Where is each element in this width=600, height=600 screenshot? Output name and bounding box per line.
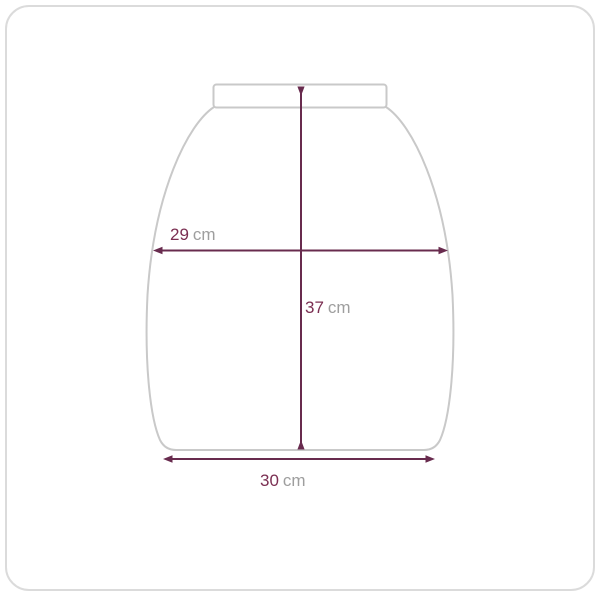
height-dimension xyxy=(297,87,304,450)
bottom-width-value: 30 xyxy=(260,471,279,490)
middle-width-unit: cm xyxy=(193,225,216,244)
screenshot-root: 29cm 37cm 30cm xyxy=(0,0,600,600)
middle-width-label: 29cm xyxy=(170,226,216,244)
middle-width-left-arrowhead-icon xyxy=(153,247,163,255)
height-bottom-arrowhead-icon xyxy=(297,440,304,450)
product-dimension-diagram xyxy=(0,0,600,600)
bottom-width-right-arrowhead-icon xyxy=(426,455,436,463)
height-label: 37cm xyxy=(305,299,351,317)
bottom-width-dimension xyxy=(163,455,435,463)
bottom-width-left-arrowhead-icon xyxy=(163,455,173,463)
middle-width-value: 29 xyxy=(170,225,189,244)
height-top-arrowhead-icon xyxy=(297,87,304,97)
bottom-width-label: 30cm xyxy=(260,472,306,490)
height-unit: cm xyxy=(328,298,351,317)
bottom-width-unit: cm xyxy=(283,471,306,490)
height-value: 37 xyxy=(305,298,324,317)
